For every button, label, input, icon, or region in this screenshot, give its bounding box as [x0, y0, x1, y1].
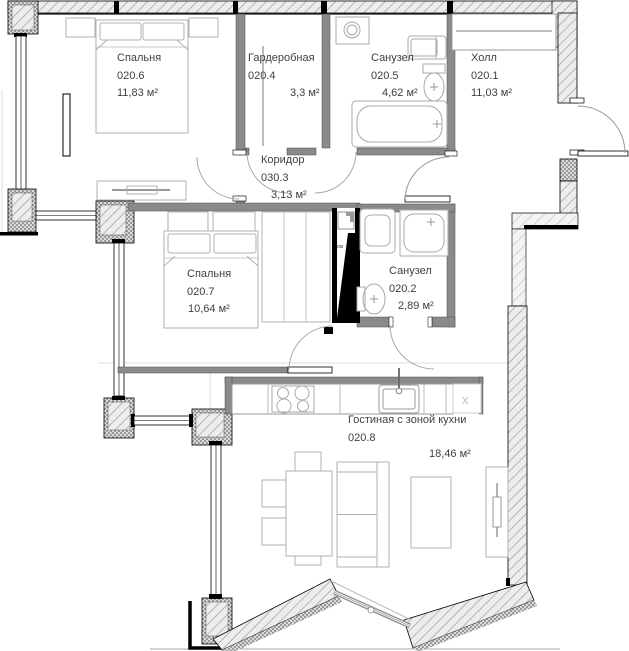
room-name: Холл: [471, 50, 512, 68]
door-bedroom2: [288, 326, 333, 373]
room-number: 020.2: [389, 281, 434, 299]
appliance-marker: х: [462, 392, 469, 407]
wall-bedroom2-south: [118, 367, 288, 373]
floor-plan: см: [0, 0, 629, 651]
dresser-icon: [97, 181, 186, 200]
room-area: 3,3 м²: [290, 85, 320, 103]
room-area: 4,62 м²: [382, 85, 418, 103]
room-number: 020.7: [187, 284, 231, 302]
room-number: 020.6: [117, 68, 161, 86]
toilet2-icon: [357, 284, 385, 314]
room-number: 020.8: [348, 430, 471, 448]
room-name: Спальня: [117, 50, 161, 68]
room-number: 030.3: [261, 170, 307, 188]
room-area: 11,83 м²: [117, 85, 161, 103]
washer-icon: [336, 17, 369, 44]
shower-icon: [400, 210, 448, 256]
nightstand-icon: [189, 18, 218, 37]
wall-bedroom2-north: [128, 203, 360, 211]
kitchen: х: [225, 368, 483, 414]
room-area: 3,13 м²: [271, 187, 307, 205]
window-bedroom1-left: [14, 33, 27, 189]
kitchen-sink-icon: [379, 368, 419, 413]
sofa-icon: [337, 462, 389, 567]
room-label-bathroom-020-2: Санузел 020.2 2,89 м²: [389, 263, 434, 316]
kitchen-counter: [232, 384, 453, 414]
nightstand-icon: [168, 212, 208, 231]
door-bath2: [389, 317, 434, 369]
room-label-corridor-030-3: Коридор 030.3 3,13 м²: [261, 152, 307, 205]
window-bedroom1-corner: [36, 211, 96, 220]
coffee-table-icon: [411, 477, 451, 548]
door-bedroom1: [197, 150, 246, 201]
room-name: Коридор: [261, 152, 307, 170]
window-bay-diagonal: [331, 581, 410, 626]
room-area: 10,64 м²: [188, 301, 231, 319]
closet-icon: [262, 212, 330, 322]
room-name: Спальня: [187, 266, 231, 284]
room-label-bedroom-020-7: Спальня 020.7 10,64 м²: [187, 266, 231, 319]
window-bedroom2-left: [112, 239, 125, 400]
radiator: [63, 94, 70, 156]
window-living-corner: [131, 414, 193, 427]
living-room-furniture: [262, 452, 508, 567]
bay-wall-right: [404, 582, 534, 648]
room-number: 020.4: [248, 68, 320, 86]
room-label-living-020-8: Гостиная с зоной кухни 020.8 18,46 м²: [348, 412, 471, 464]
door-bath1: [315, 152, 356, 193]
room-area: 18,46 м²: [429, 446, 471, 464]
bedroom1-furniture: [66, 18, 218, 200]
nightstand-icon: [66, 18, 95, 37]
room-name: Гостиная с зоной кухни: [348, 412, 471, 430]
wall-bedroom1-right: [236, 14, 245, 154]
room-label-bedroom-020-6: Спальня 020.6 11,83 м²: [117, 50, 161, 103]
door-corridor-hall: [405, 151, 457, 202]
room-label-bathroom-020-5: Санузел 020.5 4,62 м²: [371, 50, 418, 103]
room-label-wardrobe-020-4: Гардеробная 020.4 3,3 м²: [248, 50, 320, 103]
room-name: Санузел: [371, 50, 418, 68]
dining-table-icon: [286, 471, 332, 556]
room-number: 020.5: [371, 68, 418, 86]
window-living-left: [209, 441, 222, 599]
utility-shaft: см: [332, 208, 360, 323]
room-number: 020.1: [471, 68, 512, 86]
wall-bath2-south: [357, 317, 391, 327]
room-name: Гардеробная: [248, 50, 320, 68]
bathtub-icon: [352, 101, 447, 147]
room-area: 2,89 м²: [398, 298, 434, 316]
room-area: 11,03 м²: [471, 85, 512, 103]
door-entry: [570, 98, 628, 156]
wall-wardrobe-bath: [322, 14, 330, 148]
room-label-hall-020-1: Холл 020.1 11,03 м²: [471, 50, 512, 103]
chair-icon: [295, 452, 321, 471]
hall-closet: [452, 14, 556, 50]
sink2-icon: [360, 209, 395, 253]
shaft-label: см: [337, 244, 344, 250]
toilet-icon: [423, 64, 445, 101]
tv-stand-icon: [486, 467, 508, 557]
nightstand-icon: [213, 212, 255, 231]
room-name: Санузел: [389, 263, 434, 281]
